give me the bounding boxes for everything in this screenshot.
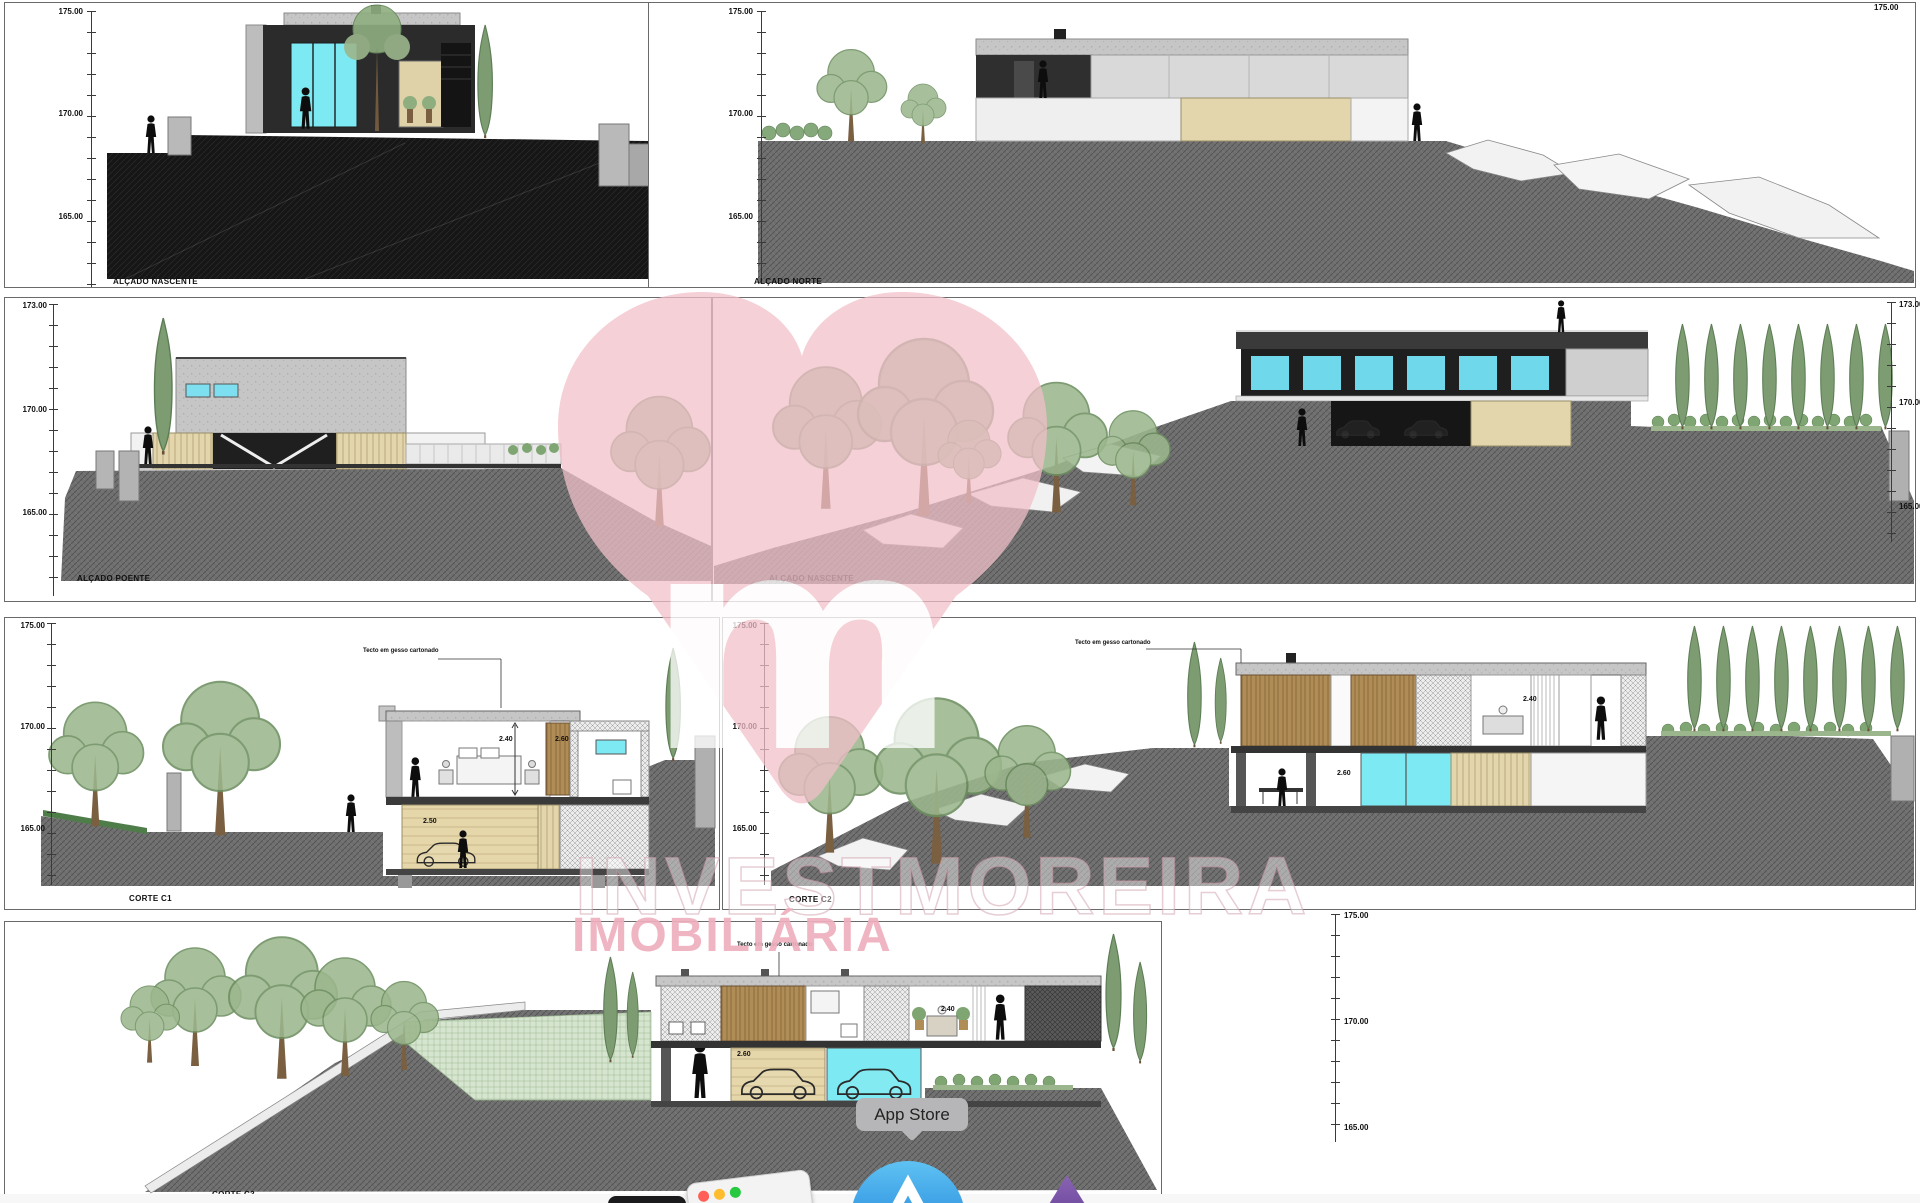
elevation-drawing	[5, 3, 649, 287]
ruler-label: 175.00	[713, 7, 753, 16]
ruler-label: 173.00	[1899, 300, 1920, 309]
ruler-label: 170.00	[5, 722, 45, 731]
ceiling-annotation: Tecto em gesso cartonado	[363, 648, 439, 654]
app-store-icon[interactable]	[851, 1161, 965, 1203]
ruler-label: 165.00	[717, 824, 757, 833]
elevation-ruler	[1887, 302, 1896, 542]
ruler-label: 170.00	[713, 109, 753, 118]
panel-title: ALÇADO NASCENTE	[113, 277, 198, 286]
dimension-label: 2.60	[1337, 770, 1351, 777]
dimension-label: 2.60	[737, 1051, 751, 1058]
elevation-drawing	[649, 3, 1915, 287]
elevation-ruler	[49, 304, 58, 596]
panel-title: CORTE C1	[129, 894, 172, 903]
elevation-ruler	[757, 11, 766, 281]
elevation-ruler	[47, 623, 56, 885]
ruler-label: 165.00	[1899, 502, 1920, 511]
ruler-label: 173.00	[7, 301, 47, 310]
ruler-label: 175.00	[5, 621, 45, 630]
ruler-label: 165.00	[43, 212, 83, 221]
ruler-label: 170.00	[1899, 398, 1920, 407]
elevation-ruler	[87, 11, 96, 287]
ruler-label: 165.00	[5, 824, 45, 833]
dimension-label: 2.40	[499, 736, 513, 743]
app-store-glyph	[851, 1161, 965, 1203]
panel-title: ALÇADO POENTE	[77, 574, 150, 583]
ruler-label: 165.00	[1344, 1123, 1384, 1132]
drawing-sheet: 175.00 170.00 165.00 ALÇADO NASCENTE	[0, 0, 1920, 1203]
ruler-label: 175.00	[1344, 911, 1384, 920]
traffic-light-green-icon	[729, 1186, 741, 1198]
ceiling-annotation: Tecto em gesso cartonado	[1075, 640, 1151, 646]
traffic-light-yellow-icon	[713, 1188, 725, 1200]
watermark-brand-text: IMOBILIÁRIA	[572, 908, 893, 963]
dimension-label: 2.50	[423, 818, 437, 825]
ruler-label: 170.00	[7, 405, 47, 414]
traffic-light-red-icon	[697, 1190, 709, 1202]
ruler-label: 170.00	[1344, 1017, 1384, 1026]
ruler-label: 170.00	[43, 109, 83, 118]
dimension-label: 2.40	[941, 1006, 955, 1013]
panel-title: ALÇADO NORTE	[754, 277, 822, 286]
black-dock-item[interactable]	[608, 1196, 686, 1203]
corner-ruler-label: 175.00	[1874, 3, 1914, 12]
ruler-label: 165.00	[7, 508, 47, 517]
ruler-label: 175.00	[43, 7, 83, 16]
watermark-logo: m	[550, 286, 1055, 813]
watermark-logo-letter: m	[646, 470, 959, 813]
section-drawing	[5, 922, 1161, 1203]
panel-corte-c3: Tecto em gesso cartonado 2.40 2.60 CORTE…	[4, 921, 1162, 1203]
dimension-label: 2.40	[1523, 696, 1537, 703]
elevation-ruler	[1331, 914, 1340, 1142]
ruler-label: 165.00	[713, 212, 753, 221]
panel-alcado-norte: 175.00 170.00 165.00 ALÇADO NORTE	[648, 2, 1916, 288]
dock-tooltip: App Store	[856, 1098, 968, 1131]
panel-alcado-nascente-1: 175.00 170.00 165.00 ALÇADO NASCENTE	[4, 2, 650, 288]
